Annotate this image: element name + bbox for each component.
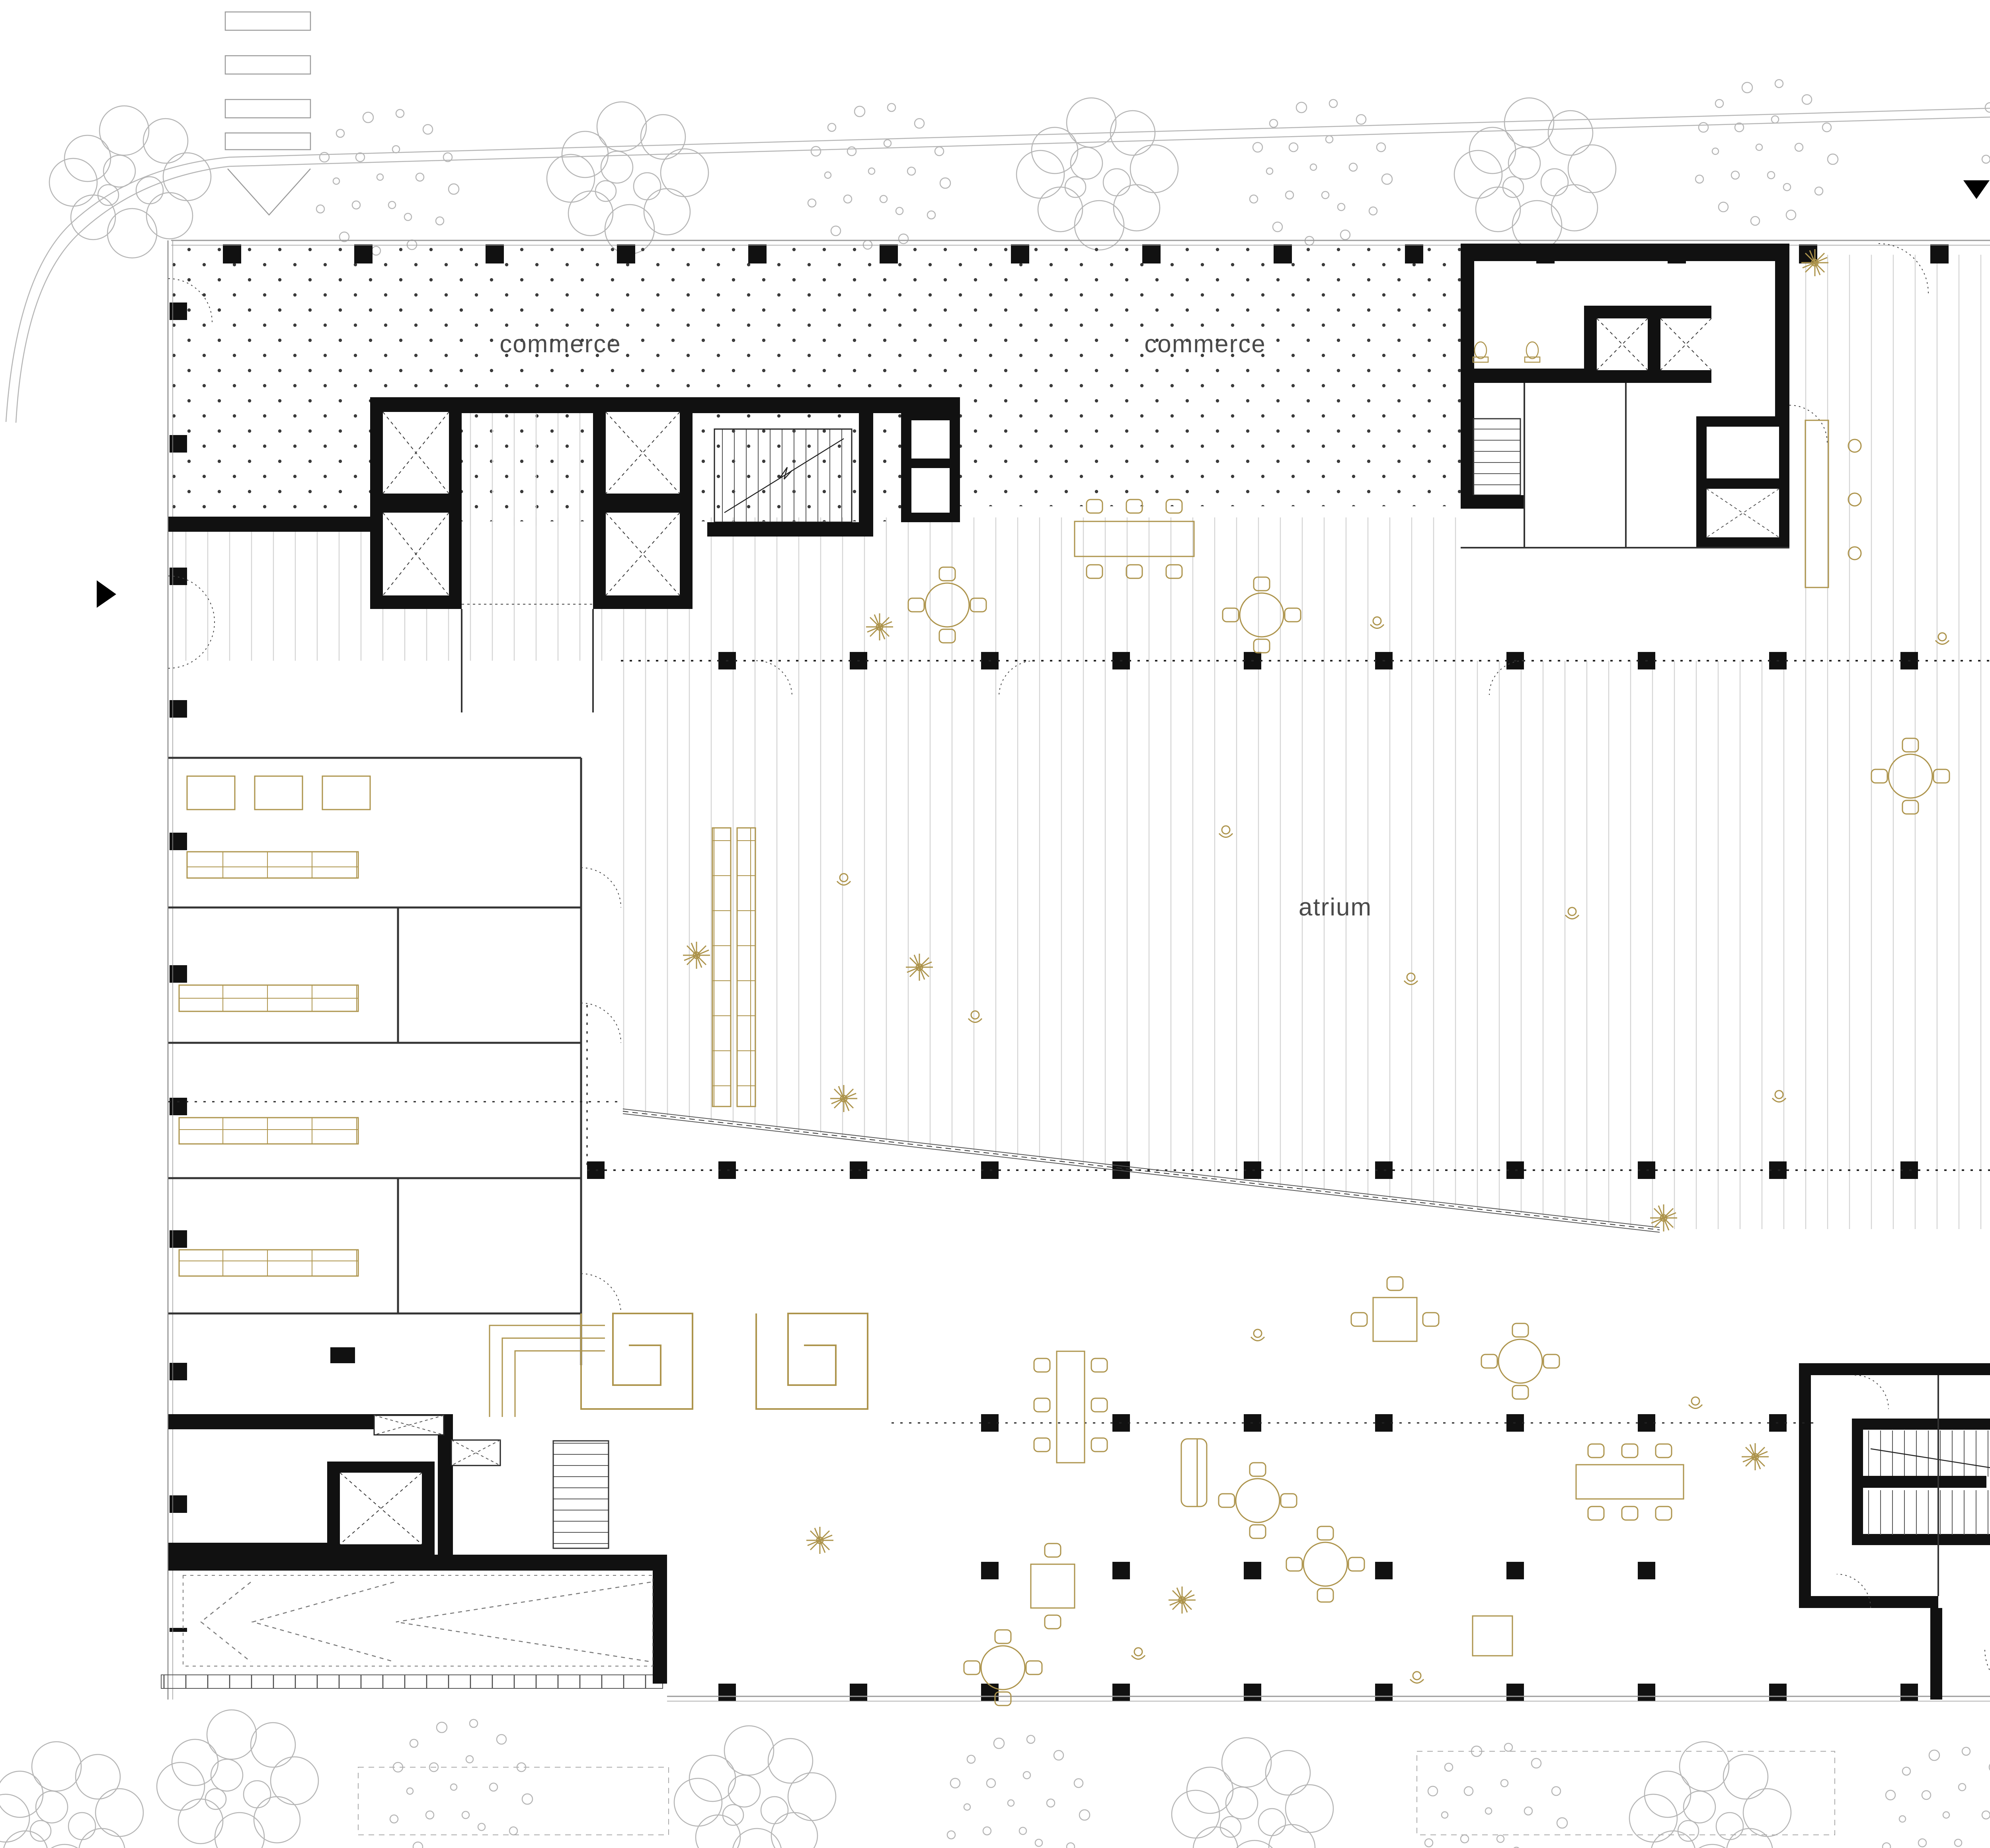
- tree-icon: [947, 1735, 1090, 1848]
- tree-icon: [316, 109, 459, 255]
- zone-corridor-core-tl: [454, 406, 599, 525]
- core-top-center: [1461, 244, 1789, 548]
- label-atrium: atrium: [1299, 894, 1372, 921]
- loading-dock: [168, 1555, 667, 1684]
- square-table: [1473, 1616, 1512, 1656]
- round-table: [1481, 1323, 1559, 1399]
- shelf-unit: [179, 1250, 358, 1276]
- long-table: [1576, 1465, 1684, 1499]
- shelf-unit: [179, 1118, 358, 1144]
- serpentine-bench: [756, 1313, 868, 1409]
- plant-icon: [806, 1527, 833, 1554]
- plant-icon: [906, 954, 933, 981]
- entrance-arrow-right-icon: [97, 580, 116, 608]
- label-commerce-top-left: commerce: [499, 330, 621, 358]
- tree-icon: [1172, 1738, 1333, 1848]
- serpentine-bench: [581, 1313, 693, 1409]
- person-icon: [1689, 1397, 1702, 1409]
- stair-top-left: [707, 413, 873, 537]
- entrance-arrow-down-icon: [1963, 180, 1990, 199]
- plant-icon: [830, 1085, 857, 1112]
- plant-icon: [866, 613, 893, 640]
- floor-plan-sheet: commerce commerce atrium commerce commer…: [0, 0, 1990, 1848]
- crosswalk: [225, 12, 310, 215]
- shelf-unit: [187, 852, 358, 878]
- counter: [322, 776, 370, 810]
- tree-icon: [1250, 100, 1392, 245]
- shelf-unit: [712, 828, 731, 1106]
- label-commerce-top-center: commerce: [1144, 330, 1266, 358]
- person-icon: [1251, 1329, 1264, 1341]
- tree-icon: [1883, 1747, 1990, 1848]
- plant-icon: [1742, 1443, 1769, 1470]
- core-bottom-left: [168, 1347, 609, 1557]
- tree-icon: [808, 103, 950, 249]
- tree-icon: [157, 1710, 318, 1848]
- sofa: [1181, 1439, 1207, 1507]
- tree-icon: [0, 1742, 143, 1848]
- tree-icon: [49, 106, 211, 258]
- yield-triangle-icon: [228, 169, 310, 215]
- tree-icon: [547, 102, 708, 254]
- tree-icon: [1629, 1742, 1791, 1848]
- person-icon: [1132, 1648, 1145, 1659]
- shelf-unit: [737, 828, 755, 1106]
- square-table: [1373, 1298, 1417, 1341]
- core-bottom-right: [1799, 1363, 1990, 1700]
- tree-icon: [1425, 1743, 1567, 1848]
- round-table: [1219, 1463, 1297, 1538]
- person-icon: [1410, 1672, 1424, 1683]
- zone-commerce-top-center: [951, 244, 1461, 506]
- trees-bottom-row: [0, 1710, 1990, 1848]
- counter: [255, 776, 302, 810]
- tree-icon: [674, 1726, 836, 1848]
- zone-atrium: [621, 661, 1990, 1110]
- trees-top-row: [49, 45, 1990, 258]
- zone-lobby-east: [1791, 255, 1990, 661]
- counter: [187, 776, 235, 810]
- plant-icon: [683, 942, 710, 969]
- tree-icon: [1695, 80, 1838, 225]
- tree-icon: [1016, 98, 1178, 250]
- dock-louver-band: [161, 1675, 663, 1688]
- display-shelf: [490, 1325, 605, 1417]
- plant-icon: [1801, 249, 1828, 276]
- plant-icon: [1169, 1587, 1196, 1614]
- shelf-unit: [179, 985, 358, 1011]
- plant-icon: [1650, 1204, 1677, 1231]
- tree-icon: [390, 1719, 533, 1848]
- long-table: [1057, 1351, 1085, 1463]
